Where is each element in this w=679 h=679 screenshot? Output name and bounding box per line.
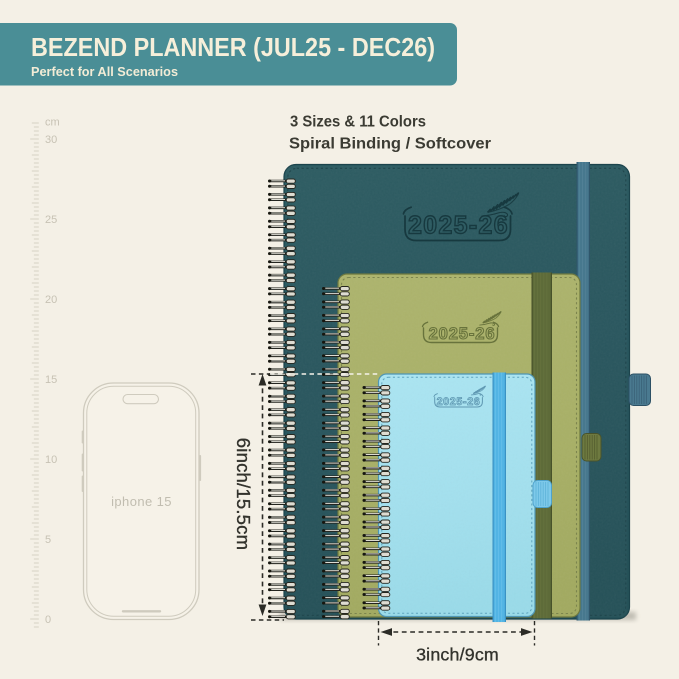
svg-text:25: 25 bbox=[45, 214, 57, 226]
svg-text:iphone 15: iphone 15 bbox=[111, 494, 172, 509]
svg-text:Perfect for All Scenarios: Perfect for All Scenarios bbox=[31, 64, 178, 79]
svg-text:15: 15 bbox=[45, 374, 57, 386]
svg-text:2025-26: 2025-26 bbox=[429, 325, 496, 343]
svg-text:10: 10 bbox=[45, 454, 57, 466]
svg-text:0: 0 bbox=[45, 614, 51, 626]
svg-text:3 Sizes & 11 Colors: 3 Sizes & 11 Colors bbox=[290, 114, 426, 131]
svg-text:2025-26: 2025-26 bbox=[437, 396, 481, 408]
svg-text:Spiral Binding / Softcover: Spiral Binding / Softcover bbox=[289, 136, 491, 153]
svg-text:5: 5 bbox=[45, 534, 51, 546]
svg-text:20: 20 bbox=[45, 294, 57, 306]
svg-text:BEZEND PLANNER (JUL25 - DEC26): BEZEND PLANNER (JUL25 - DEC26) bbox=[31, 32, 435, 62]
svg-text:3inch/9cm: 3inch/9cm bbox=[416, 645, 499, 665]
svg-text:2025-26: 2025-26 bbox=[408, 213, 509, 240]
svg-text:cm: cm bbox=[45, 117, 60, 129]
svg-text:30: 30 bbox=[45, 134, 57, 146]
svg-text:6inch/15.5cm: 6inch/15.5cm bbox=[233, 438, 254, 550]
